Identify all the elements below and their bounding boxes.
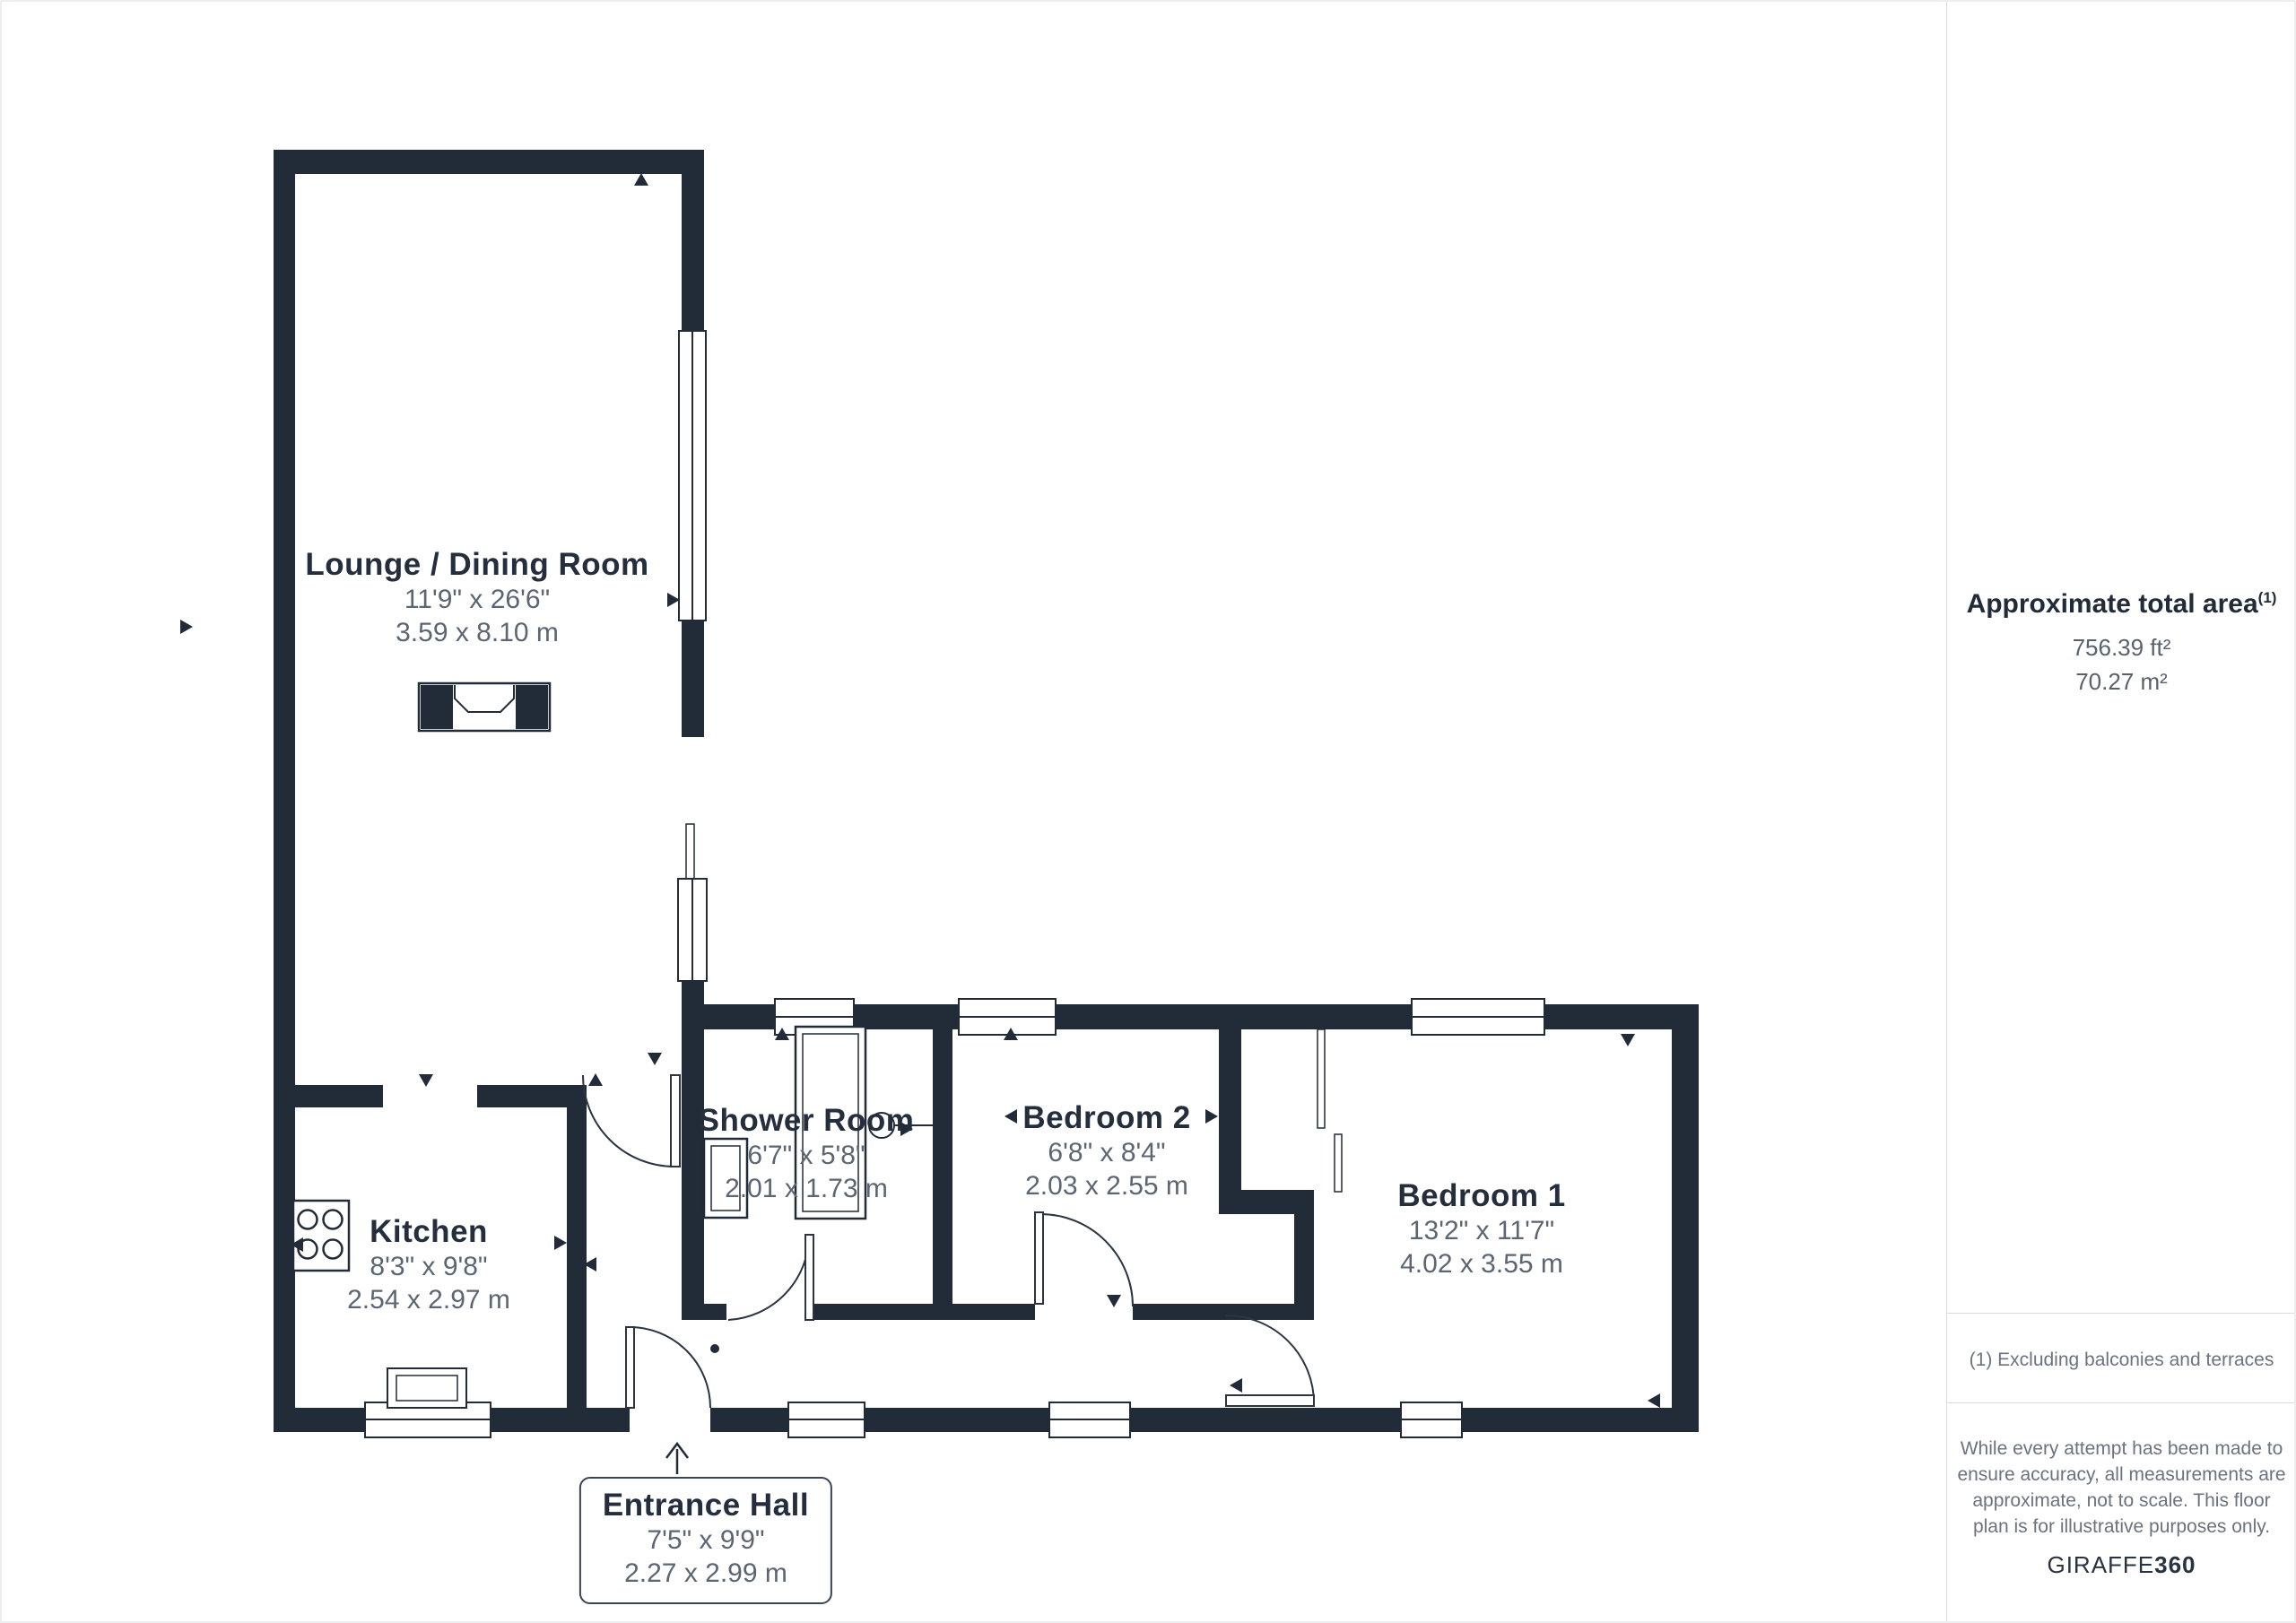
info-sidebar: Approximate total area(1) 756.39 ft² 70.… [1946,2,2296,1623]
door-swing-arc [630,1327,710,1408]
area-footnote: (1) Excluding balconies and terraces [1947,1350,2296,1371]
room-dim-metric: 2.01 x 1.73 m [699,1172,915,1205]
total-area-m: 70.27 m² [1947,668,2296,696]
room-dim-imperial: 6'7" x 5'8" [699,1139,915,1172]
sidebar-divider [1947,1313,2296,1314]
disclaimer-text: While every attempt has been made to ens… [1956,1436,2288,1540]
room-dim-metric: 2.54 x 2.97 m [347,1283,510,1316]
room-dim-metric: 2.27 x 2.99 m [603,1557,809,1590]
room-name: Kitchen [347,1214,510,1250]
view-marker-icon [1648,1393,1660,1408]
brand-name: GIRAFFE [2047,1551,2154,1578]
door-swing-arc [728,1235,809,1320]
door-leaf [805,1235,813,1320]
view-marker-icon [588,1073,603,1086]
room-name: Bedroom 1 [1397,1178,1565,1214]
room-dim-metric: 2.03 x 2.55 m [1022,1169,1190,1202]
partition-line [1335,1134,1342,1192]
view-marker-icon [1107,1295,1121,1307]
total-area-ft: 756.39 ft² [1947,634,2296,662]
brand-suffix: 360 [2154,1551,2196,1578]
sidebar-divider [1947,1402,2296,1403]
view-marker-icon [554,1236,567,1250]
fireplace-icon [419,683,550,731]
partition-line [1318,1029,1325,1128]
view-marker-icon [180,620,193,634]
view-marker-icon [1205,1109,1218,1124]
room-label-shower-room: Shower Room 6'7" x 5'8" 2.01 x 1.73 m [699,1103,915,1205]
stove-icon [293,1201,349,1271]
room-dim-imperial: 8'3" x 9'8" [347,1250,510,1283]
view-marker-icon [1004,1109,1017,1124]
view-marker-icon [634,173,648,186]
door-stop-dot [710,1344,719,1353]
view-marker-icon [419,1074,433,1087]
room-label-kitchen: Kitchen 8'3" x 9'8" 2.54 x 2.97 m [347,1214,510,1316]
total-area-title: Approximate total area(1) [1947,589,2296,620]
room-dim-imperial: 11'9" x 26'6" [305,583,648,616]
room-name: Entrance Hall [603,1488,809,1523]
room-name: Shower Room [699,1103,915,1139]
room-name: Lounge / Dining Room [305,547,648,583]
door-swing-arc [583,1075,674,1167]
view-marker-icon [648,1053,662,1065]
room-label-bedroom-2: Bedroom 2 6'8" x 8'4" 2.03 x 2.55 m [1022,1100,1190,1202]
view-marker-icon [1621,1034,1635,1046]
total-area-label: Approximate total area [1967,589,2258,619]
room-dim-imperial: 13'2" x 11'7" [1397,1214,1565,1247]
door-leaf [1226,1395,1314,1406]
room-label-lounge: Lounge / Dining Room 11'9" x 26'6" 3.59 … [305,547,648,649]
floor-plan-page: Lounge / Dining Room 11'9" x 26'6" 3.59 … [0,0,2296,1623]
total-area-footnote-ref: (1) [2258,589,2277,606]
room-dim-metric: 3.59 x 8.10 m [305,616,648,649]
giraffe360-logo: GIRAFFE360 [1947,1551,2296,1579]
room-label-bedroom-1: Bedroom 1 13'2" x 11'7" 4.02 x 3.55 m [1397,1178,1565,1280]
door-leaf [626,1327,634,1408]
room-dim-metric: 4.02 x 3.55 m [1397,1247,1565,1280]
kitchen-sink-icon [387,1368,466,1408]
room-label-entrance-hall: Entrance Hall 7'5" x 9'9" 2.27 x 2.99 m [579,1477,832,1604]
door-swing-arc [1040,1214,1133,1306]
room-dim-imperial: 6'8" x 8'4" [1022,1136,1190,1169]
door-leaf [671,1075,680,1167]
windows [365,331,1544,1437]
door-leaf [1035,1212,1043,1304]
room-dim-imperial: 7'5" x 9'9" [603,1523,809,1557]
view-marker-icon [1230,1378,1242,1393]
room-name: Bedroom 2 [1022,1100,1190,1136]
view-marker-icon [667,593,680,607]
entry-arrow-icon [666,1444,688,1474]
